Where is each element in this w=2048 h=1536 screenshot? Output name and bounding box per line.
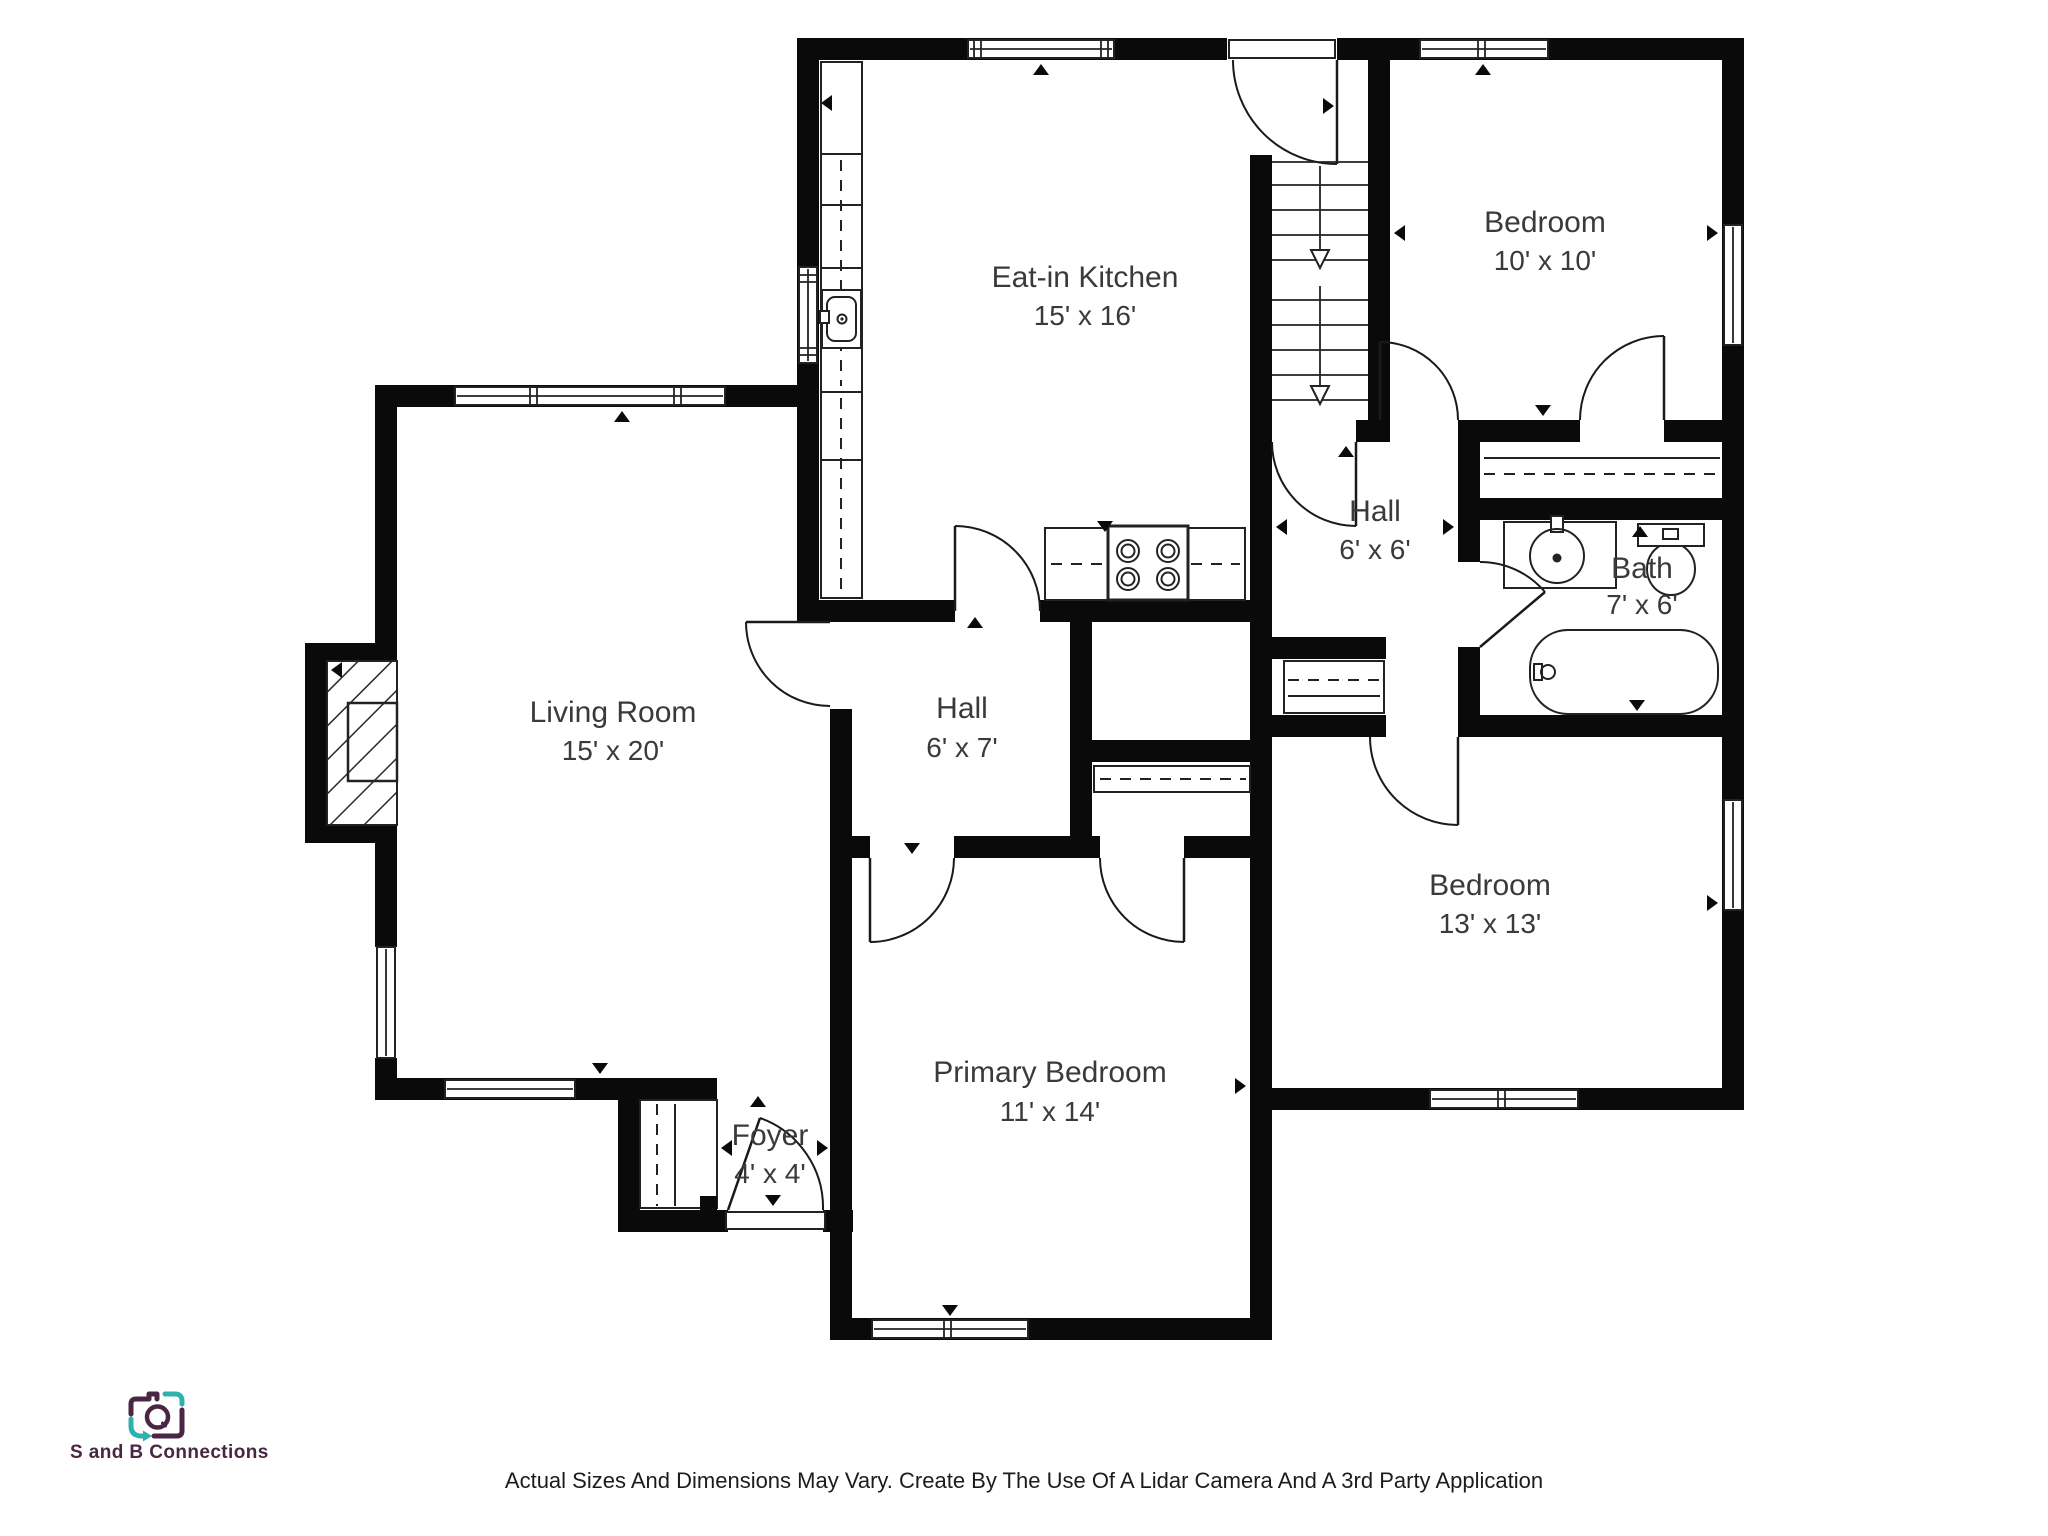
window-living-south (445, 1080, 575, 1098)
window-primary-south (872, 1320, 1028, 1338)
svg-text:Hall: Hall (1349, 495, 1401, 528)
window-living-west (377, 947, 395, 1058)
svg-text:Foyer: Foyer (732, 1119, 809, 1152)
kitchen-hall-door (955, 526, 1040, 611)
room-label-bath: Bath 7' x 6' (1606, 552, 1677, 620)
svg-text:11' x 14': 11' x 14' (1000, 1096, 1100, 1127)
svg-text:Bedroom: Bedroom (1429, 869, 1551, 902)
svg-text:4' x 4': 4' x 4' (734, 1158, 805, 1189)
staircase (1272, 162, 1368, 404)
room-label-hall6x7: Hall 6' x 7' (926, 692, 997, 763)
room-label-bedroom13: Bedroom 13' x 13' (1429, 869, 1551, 939)
svg-text:Hall: Hall (936, 692, 988, 725)
svg-text:15' x 16': 15' x 16' (1034, 300, 1137, 331)
room-label-living-room: Living Room 15' x 20' (530, 696, 697, 766)
window-bedroom10-north (1420, 40, 1548, 58)
floor-plan-svg: Eat-in Kitchen 15' x 16' Bedroom 10' x 1… (0, 0, 2048, 1536)
room-label-kitchen: Eat-in Kitchen 15' x 16' (992, 261, 1179, 331)
svg-text:6' x 6': 6' x 6' (1339, 534, 1410, 565)
svg-text:Living Room: Living Room (530, 696, 697, 729)
room-labels: Eat-in Kitchen 15' x 16' Bedroom 10' x 1… (530, 206, 1678, 1189)
fireplace (305, 643, 397, 843)
svg-text:13' x 13': 13' x 13' (1439, 908, 1542, 939)
bath-vanity-sink (1504, 516, 1616, 588)
window-bedroom13-south (1430, 1090, 1578, 1108)
bedroom10-closet-door (1580, 336, 1664, 420)
logo-text: S and B Connections (70, 1442, 269, 1464)
bedroom13-door (1370, 737, 1458, 825)
window-bedroom13-east (1724, 800, 1742, 910)
kitchen-fixtures (820, 62, 1245, 600)
svg-text:Eat-in Kitchen: Eat-in Kitchen (992, 261, 1179, 294)
entry-door (1229, 40, 1337, 164)
living-hall-door (746, 622, 830, 706)
room-label-foyer: Foyer 4' x 4' (732, 1119, 809, 1189)
camera-icon (125, 1391, 191, 1443)
bathtub (1530, 630, 1718, 714)
floor-plan-page: Eat-in Kitchen 15' x 16' Bedroom 10' x 1… (0, 0, 2048, 1536)
svg-text:Bedroom: Bedroom (1484, 206, 1606, 239)
window-living-north (455, 387, 725, 405)
window-kitchen-north (968, 40, 1114, 58)
room-label-bedroom10: Bedroom 10' x 10' (1484, 206, 1606, 276)
window-kitchen-west (799, 267, 817, 363)
room-label-primary-bedroom: Primary Bedroom 11' x 14' (933, 1056, 1166, 1127)
primary-closet-door (1100, 858, 1184, 942)
linen-closet (1484, 458, 1720, 474)
stove (1108, 526, 1188, 600)
bedroom10-hall-door (1380, 342, 1458, 420)
svg-text:6' x 7': 6' x 7' (926, 732, 997, 763)
room-label-hall6x6: Hall 6' x 6' (1339, 495, 1410, 565)
kitchen-sink (820, 290, 861, 348)
svg-text:Primary Bedroom: Primary Bedroom (933, 1056, 1166, 1089)
primary-closet-shelf (1094, 766, 1250, 792)
disclaimer-text: Actual Sizes And Dimensions May Vary. Cr… (0, 1468, 2048, 1494)
svg-text:Bath: Bath (1611, 552, 1673, 585)
hall-primary-door (870, 858, 954, 942)
window-bedroom10-east (1724, 225, 1742, 345)
refrigerator (821, 62, 862, 154)
svg-text:15' x 20': 15' x 20' (562, 735, 665, 766)
svg-text:7' x 6': 7' x 6' (1606, 589, 1677, 620)
svg-text:10' x 10': 10' x 10' (1494, 245, 1597, 276)
bath-door (1480, 562, 1545, 647)
bedroom13-closet (1284, 661, 1384, 713)
